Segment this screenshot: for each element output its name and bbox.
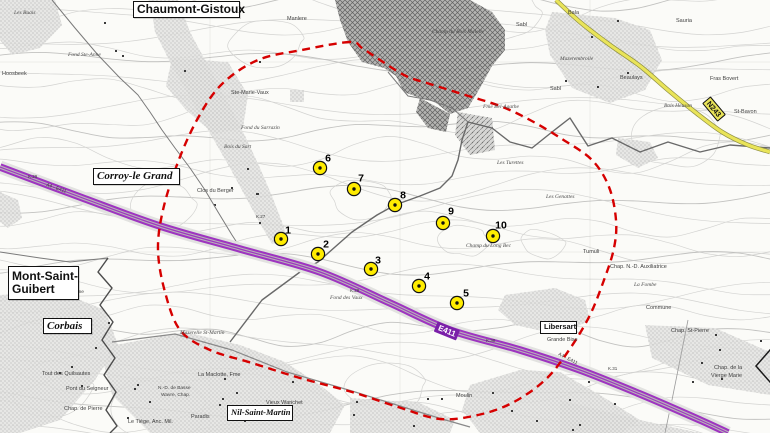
place-label: Champ du Bois Maielle [432, 29, 485, 35]
site-marker-number: 8 [400, 190, 406, 202]
place-label: La Maclotte, Fme [198, 372, 241, 378]
place-label: K.27 [256, 214, 266, 219]
place-label: K.30 [486, 338, 496, 343]
place-label: Clos du Berger [197, 188, 234, 194]
place-label: Bala [568, 10, 580, 16]
place-label: Chap. St-Pierre [671, 328, 709, 334]
place-label: Chap. de Pierre [64, 406, 103, 412]
place-label: Les Buais [13, 10, 36, 16]
place-label: Le Tiège, Anc. Mil. [128, 419, 173, 425]
site-marker-number: 3 [375, 255, 381, 267]
site-marker-number: 6 [325, 153, 331, 165]
place-label: Chap. N.-D. Auxiliatrice [610, 264, 667, 270]
place-label: Chap. de la [714, 365, 743, 371]
place-label: Les Turettes [496, 160, 524, 166]
site-marker-number: 9 [448, 206, 454, 218]
site-marker-number: 4 [424, 271, 430, 283]
place-label: Fond des Vaux [329, 295, 363, 301]
place-label: Moulin [456, 393, 472, 399]
place-label: St-Bavon [734, 109, 757, 115]
place-label: N.-D. de Basse [158, 385, 191, 391]
place-label: Pont du Seigneur [66, 386, 109, 392]
site-marker-number: 7 [358, 173, 364, 185]
place-label: Fme Bel-Agathe [482, 104, 519, 110]
site-marker-number: 10 [495, 220, 507, 232]
place-label: Bois du Sart [224, 144, 252, 150]
site-marker-number: 5 [463, 288, 469, 300]
place-label: Beaulays [620, 75, 643, 81]
place-label: Vierge Marie [711, 373, 742, 379]
place-label: K.29 [28, 174, 38, 179]
site-marker-number: 1 [285, 225, 291, 237]
place-label: Fond du Sarrazin [240, 125, 280, 131]
place-label: Tumuli [583, 249, 599, 255]
place-label: Les Genattes [545, 194, 575, 200]
place-label: Ste-Marie-Vaux [231, 90, 269, 96]
place-label: Champ du Long Bec [466, 243, 512, 249]
place-label: Sabl [516, 22, 527, 28]
place-label: La Fombe [633, 282, 657, 288]
place-label: Mazerembroile [559, 56, 594, 62]
place-label: Paradis [191, 414, 210, 420]
place-label: K.31 [608, 366, 618, 371]
place-label: Grande Bise [547, 337, 578, 343]
base-map: Les BuaisFond Ste-AnneHoosbeekManlereCha… [0, 0, 770, 433]
place-label: Commune [646, 305, 671, 311]
place-label: Bois Heuson [664, 103, 692, 109]
place-label: Manlere [287, 16, 307, 22]
place-label: Sabl [550, 86, 561, 92]
place-label: K.28 [350, 288, 360, 293]
place-label: Fras Bovert [710, 76, 739, 82]
place-label: Wavre, Chap. [161, 392, 190, 398]
map-image: Les BuaisFond Ste-AnneHoosbeekManlereCha… [0, 0, 770, 433]
place-label: Sauria [676, 18, 693, 24]
place-label: Tout des Quilsautes [42, 371, 91, 377]
site-marker-number: 2 [323, 239, 329, 251]
place-label: Mazerelle St-Martin [179, 330, 225, 336]
place-label: Fond Ste-Anne [67, 52, 101, 58]
place-label: Vieux Warichet [266, 400, 303, 406]
place-label: Ferme du Châtel, Trou de la Tène [12, 289, 84, 295]
place-label: Hoosbeek [2, 71, 27, 77]
